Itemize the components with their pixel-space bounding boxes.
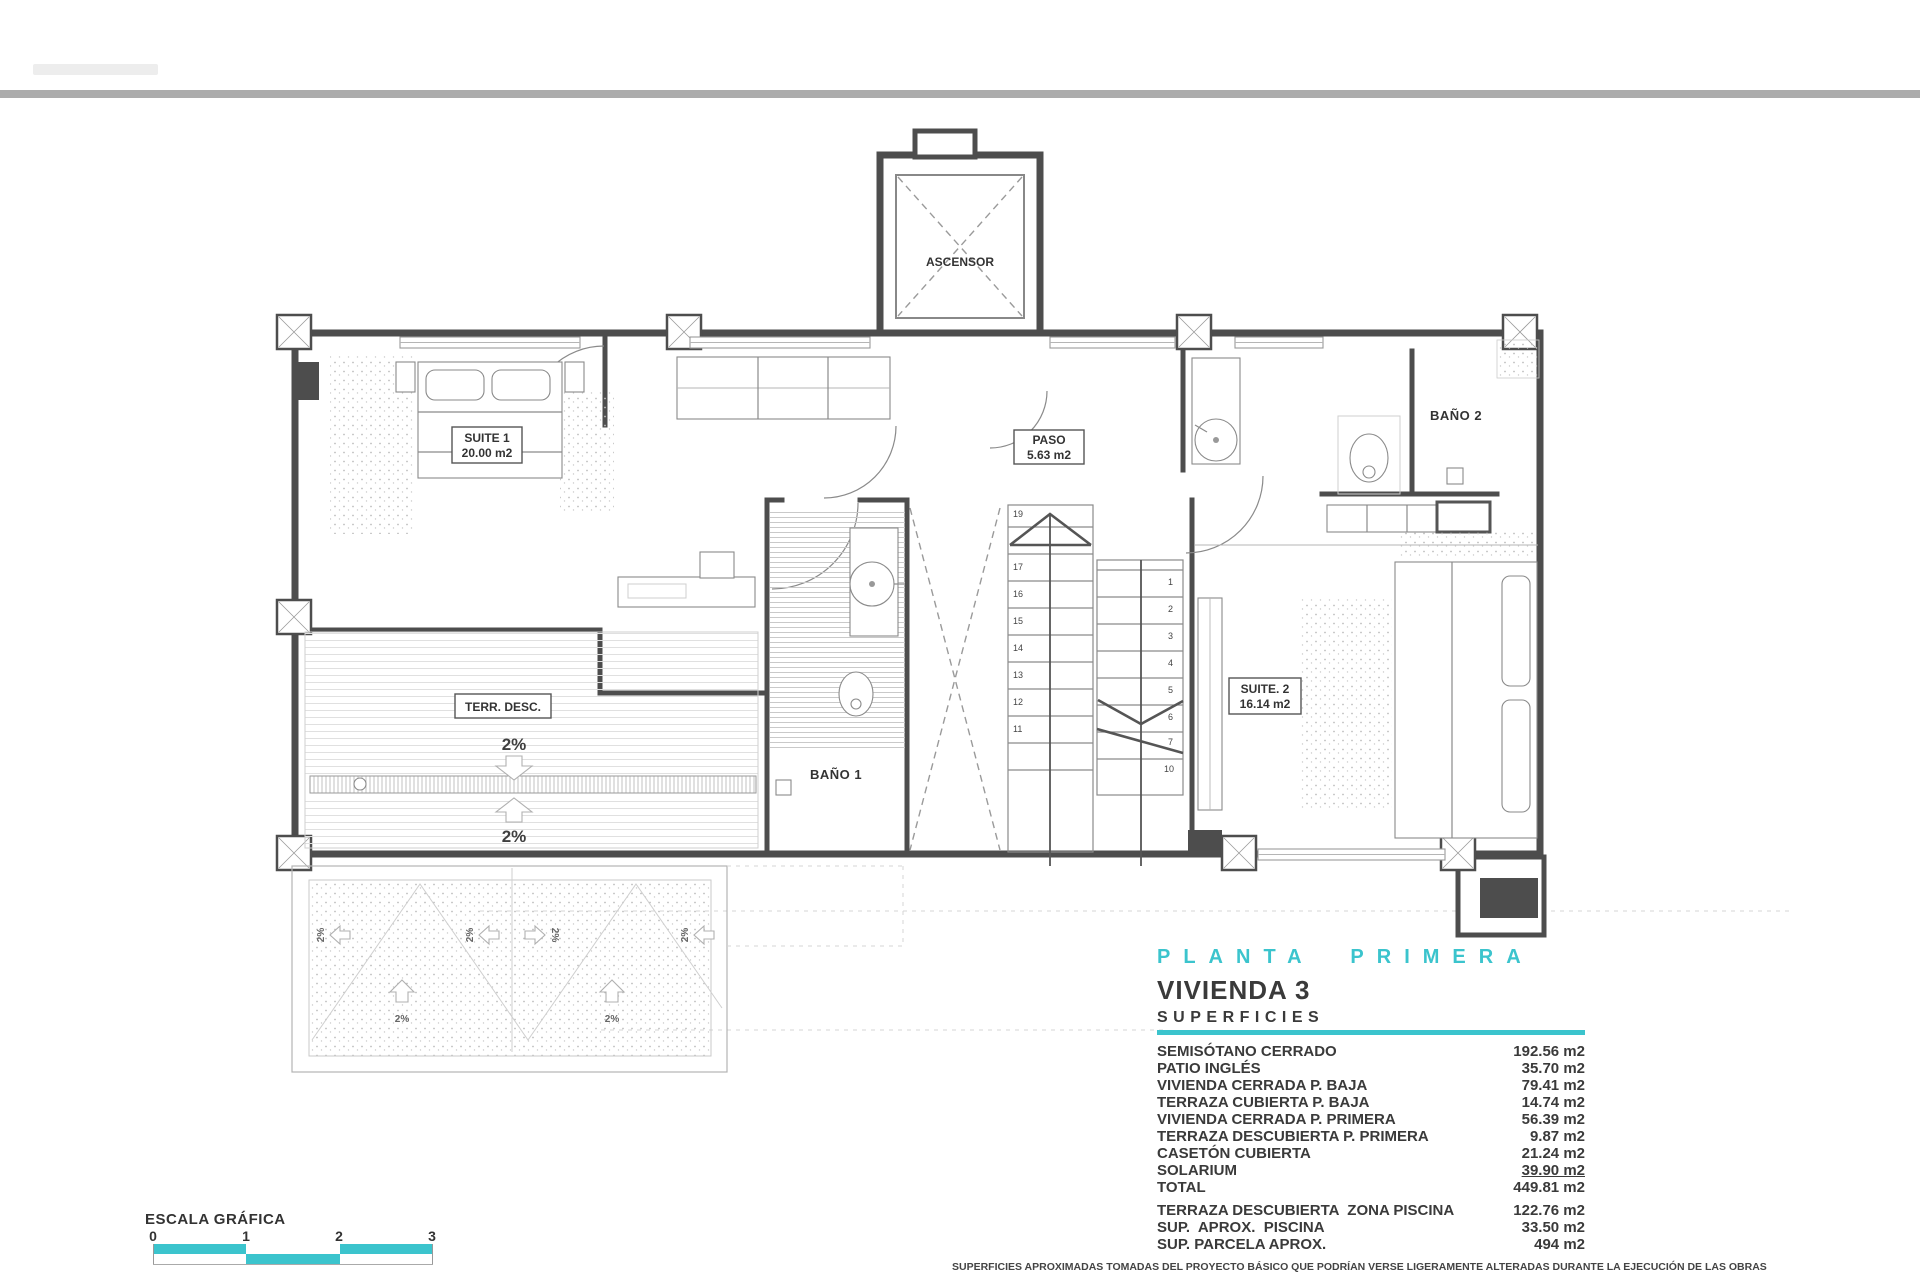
room-terraza: TERR. DESC. 2% 2% <box>305 632 758 848</box>
chair <box>700 552 734 578</box>
table-row: CASETÓN CUBIERTA21.24 m2 <box>1157 1145 1585 1162</box>
graphic-scale: ESCALA GRÁFICA 0 1 2 3 <box>145 1211 455 1265</box>
table-row: SUP. PARCELA APROX.494 m2 <box>1157 1236 1585 1253</box>
table-row: SEMISÓTANO CERRADO192.56 m2 <box>1157 1043 1585 1060</box>
stair-left-flight: 19 17 16 15 14 13 12 11 <box>1008 505 1093 866</box>
svg-text:2%: 2% <box>549 928 560 943</box>
room-label-suite1: SUITE 1 20.00 m2 <box>452 427 522 463</box>
svg-text:3: 3 <box>1168 631 1173 641</box>
svg-text:13: 13 <box>1013 670 1023 680</box>
room-suite1: SUITE 1 20.00 m2 <box>330 356 614 534</box>
svg-text:2%: 2% <box>395 1014 410 1025</box>
svg-text:2%: 2% <box>465 928 476 943</box>
slope-label: 2% <box>502 735 527 754</box>
pillow <box>1502 576 1530 686</box>
svg-text:5.63 m2: 5.63 m2 <box>1027 448 1071 462</box>
slope-label: 2% <box>502 827 527 846</box>
areas-table: SEMISÓTANO CERRADO192.56 m2 PATIO INGLÉS… <box>1157 1043 1585 1196</box>
plan-title: PLANTA PRIMERA <box>1157 946 1585 969</box>
pool-terrace: 2% 2% 2% 2% 2% 2% <box>292 866 903 1072</box>
scale-tick-labels: 0 1 2 3 <box>145 1228 455 1244</box>
svg-text:SUITE 1: SUITE 1 <box>464 431 510 445</box>
room-label-bano2: BAÑO 2 <box>1430 408 1482 423</box>
nightstand <box>396 362 415 392</box>
room-label-bano1: BAÑO 1 <box>810 767 862 782</box>
room-bano1: BAÑO 1 <box>770 508 905 795</box>
svg-text:4: 4 <box>1168 658 1173 668</box>
table-row: VIVIENDA CERRADA P. PRIMERA56.39 m2 <box>1157 1111 1585 1128</box>
svg-text:2: 2 <box>1168 604 1173 614</box>
disclaimer-note: SUPERFICIES APROXIMADAS TOMADAS DEL PROY… <box>952 1261 1782 1273</box>
svg-text:16.14 m2: 16.14 m2 <box>1240 697 1291 711</box>
svg-text:14: 14 <box>1013 643 1023 653</box>
table-row: TERRAZA DESCUBIERTA ZONA PISCINA122.76 m… <box>1157 1202 1585 1219</box>
svg-text:15: 15 <box>1013 616 1023 626</box>
shower-drain <box>1447 468 1463 484</box>
nightstand <box>565 362 584 392</box>
room-suite2: SUITE. 2 16.14 m2 <box>1198 532 1537 838</box>
svg-text:1: 1 <box>1168 577 1173 587</box>
pillow <box>426 370 484 400</box>
stair-right-flight: 1 2 3 4 5 6 7 10 <box>1097 560 1183 866</box>
wall-notch <box>297 362 319 400</box>
table-row: SUP. APROX. PISCINA33.50 m2 <box>1157 1219 1585 1236</box>
table-row: TERRAZA CUBIERTA P. BAJA14.74 m2 <box>1157 1094 1585 1111</box>
svg-text:5: 5 <box>1168 685 1173 695</box>
areas-table-exterior: TERRAZA DESCUBIERTA ZONA PISCINA122.76 m… <box>1157 1202 1585 1253</box>
title-block: PLANTA PRIMERA VIVIENDA 3 SUPERFICIES SE… <box>1157 946 1585 1253</box>
table-row: PATIO INGLÉS35.70 m2 <box>1157 1060 1585 1077</box>
svg-text:2%: 2% <box>605 1014 620 1025</box>
scale-bar <box>153 1244 433 1265</box>
room-label-suite2: SUITE. 2 16.14 m2 <box>1229 678 1301 714</box>
drain-channel <box>310 776 756 793</box>
svg-text:16: 16 <box>1013 589 1023 599</box>
unit-title: VIVIENDA 3 <box>1157 975 1585 1006</box>
svg-text:TERR. DESC.: TERR. DESC. <box>465 700 541 714</box>
svg-text:17: 17 <box>1013 562 1023 572</box>
svg-text:2%: 2% <box>316 928 327 943</box>
room-bano2: BAÑO 2 <box>1192 340 1539 545</box>
table-row: SOLARIUM39.90 m2 <box>1157 1162 1585 1179</box>
svg-text:20.00 m2: 20.00 m2 <box>462 446 513 460</box>
table-row: TERRAZA DESCUBIERTA P. PRIMERA9.87 m2 <box>1157 1128 1585 1145</box>
floor-plan-drawing: ASCENSOR <box>0 0 1920 1280</box>
svg-text:6: 6 <box>1168 712 1173 722</box>
svg-text:12: 12 <box>1013 697 1023 707</box>
section-title: SUPERFICIES <box>1157 1009 1585 1027</box>
elevator-label: ASCENSOR <box>926 255 994 269</box>
elevator-shaft: ASCENSOR <box>880 131 1040 333</box>
svg-text:10: 10 <box>1164 764 1174 774</box>
svg-text:11: 11 <box>1013 724 1022 734</box>
void-cross <box>910 508 1000 850</box>
scale-title: ESCALA GRÁFICA <box>145 1211 455 1228</box>
wall-pier-solid <box>1188 830 1222 856</box>
svg-text:2%: 2% <box>680 928 691 943</box>
svg-text:7: 7 <box>1168 737 1173 747</box>
accent-rule <box>1157 1030 1585 1035</box>
table-row-total: TOTAL449.81 m2 <box>1157 1179 1585 1196</box>
svg-text:19: 19 <box>1013 509 1023 519</box>
room-label-terraza: TERR. DESC. <box>455 694 551 718</box>
pillow <box>1502 700 1530 812</box>
table-row: VIVIENDA CERRADA P. BAJA79.41 m2 <box>1157 1077 1585 1094</box>
svg-text:SUITE. 2: SUITE. 2 <box>1241 682 1290 696</box>
room-label-paso: PASO 5.63 m2 <box>1014 430 1084 464</box>
shower <box>1497 340 1539 378</box>
pillow <box>492 370 550 400</box>
svg-text:PASO: PASO <box>1032 433 1065 447</box>
